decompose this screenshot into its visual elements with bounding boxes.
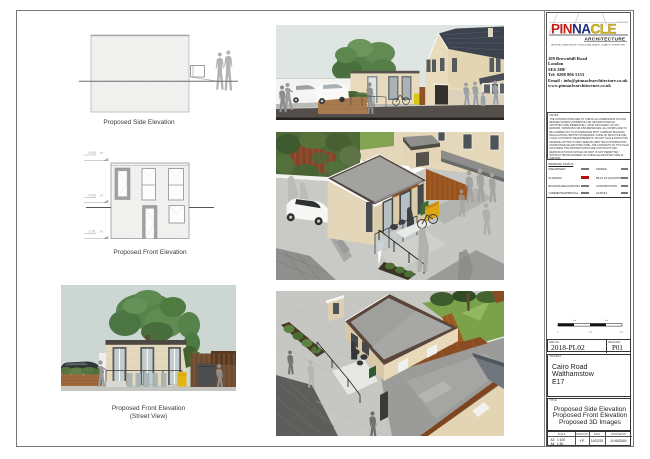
svg-text:+3.00: +3.00 [88,151,96,155]
svg-text:-2.00: -2.00 [88,230,95,234]
svg-text:m: m [100,194,103,198]
svg-text:4m: 4m [620,332,623,334]
svg-text:ARCHITECTURAL DESIGN - STRUCTU: ARCHITECTURAL DESIGN - STRUCTURAL DESIGN… [551,44,625,47]
svg-text:m: m [100,230,103,234]
svg-text:+0.50: +0.50 [88,194,96,198]
svg-text:1m: 1m [573,320,576,322]
svg-text:ARCHITECTURE: ARCHITECTURE [584,37,625,42]
svg-text:0: 0 [557,332,559,334]
svg-text:2m: 2m [589,332,592,334]
svg-text:PINNACLE: PINNACLE [551,22,617,37]
svg-text:3m: 3m [605,320,608,322]
svg-text:m: m [100,151,103,155]
